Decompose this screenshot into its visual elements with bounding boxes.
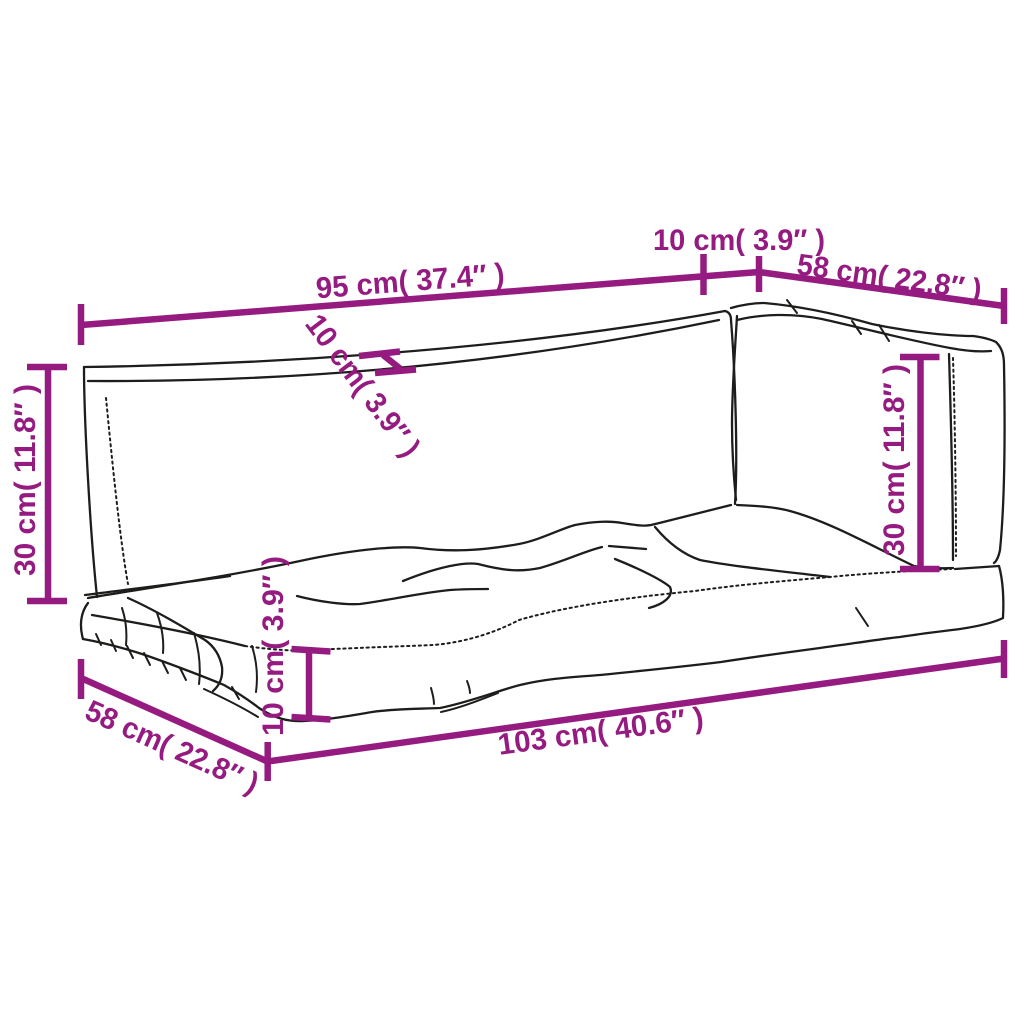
svg-text:10 cm( 3.9″ ): 10 cm( 3.9″ ) [257,556,290,736]
svg-text:30 cm( 11.8″ ): 30 cm( 11.8″ ) [9,384,42,576]
svg-text:30 cm( 11.8″ ): 30 cm( 11.8″ ) [878,364,911,556]
